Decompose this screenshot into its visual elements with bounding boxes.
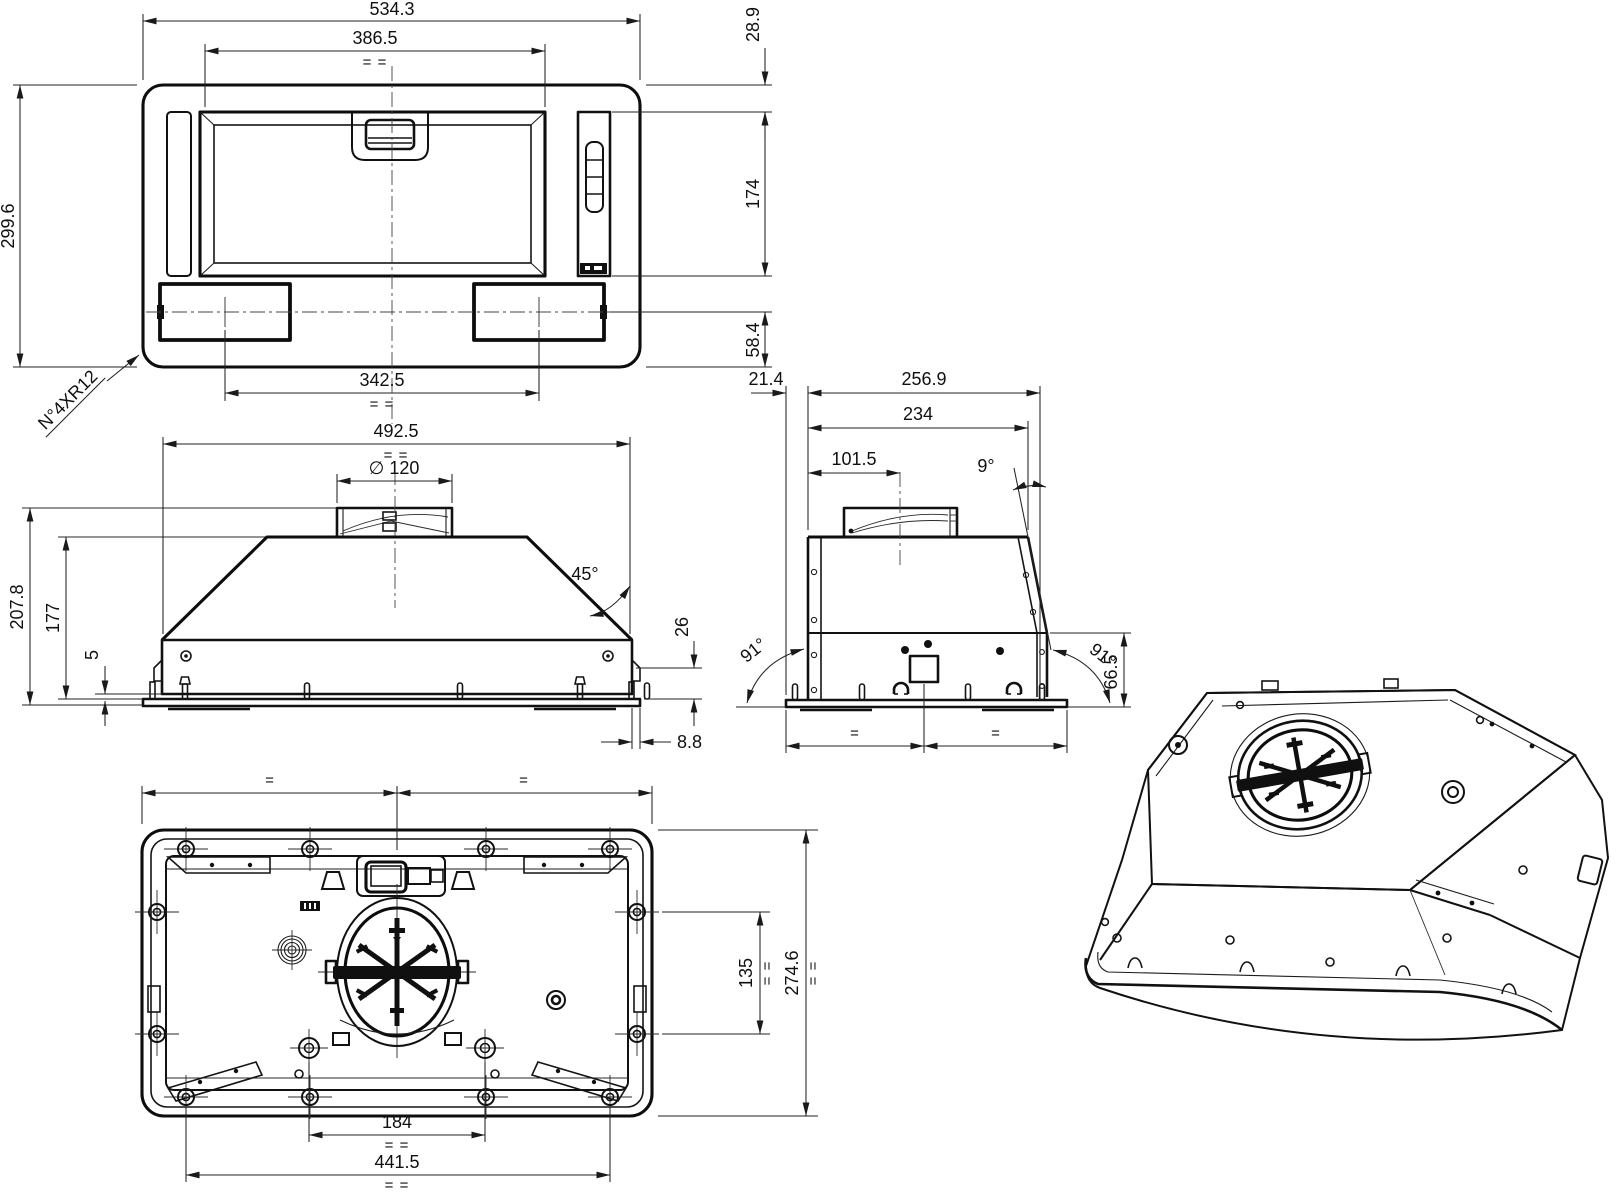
dim-angle-left: 91° [736, 634, 770, 667]
flange-plate [143, 699, 640, 706]
dim-edge-height: 26 [672, 617, 692, 637]
side-dimensions: 21.4 256.9 234 101.5 9° 91° 91° 66.5 [736, 369, 1131, 753]
underside-panel [1148, 690, 1575, 890]
fan-assembly [318, 884, 476, 1058]
dim-flange-overhang: 8.8 [677, 732, 702, 752]
plan-view: 534.3 386.5 = = 299.6 28.9 174 58.4 [0, 0, 772, 437]
iso-rim-inner [1098, 952, 1552, 1012]
bottom-view: = = 135 = = 274.6 = = 184 = = 441.5 = = [135, 772, 822, 1194]
dim-side-total-depth: 256.9 [901, 369, 946, 389]
control-panel [578, 112, 610, 276]
dim-tilt-angle: 9° [977, 456, 994, 476]
front-elevation: 492.5 = = ∅ 120 45° 207.8 177 5 26 [7, 421, 702, 752]
eq-mark: = [991, 725, 1001, 742]
eq-mark: = = [759, 961, 776, 986]
dim-duct-diameter: ∅ 120 [369, 458, 420, 478]
eq-mark: = = [805, 961, 822, 986]
dim-plan-lamp-spacing: 342.5 [359, 370, 404, 390]
eq-mark: = [850, 725, 860, 742]
dim-bottom-screw-depth: 135 [736, 958, 756, 988]
eq-mark: = [265, 772, 275, 789]
isometric-view [1086, 679, 1609, 1040]
latch-underside [357, 856, 445, 896]
corner-radius-note: N°4XR12 [34, 366, 101, 433]
latch-handle [352, 113, 428, 160]
cable-cutout [910, 656, 938, 682]
dim-plan-panel-height: 174 [743, 179, 763, 209]
iso-rim-outer [1086, 958, 1563, 1030]
dim-flange-gap: 5 [82, 650, 102, 660]
dim-plan-total-height: 299.6 [0, 203, 18, 248]
dim-bottom-total-depth: 274.6 [782, 950, 802, 995]
lower-band [162, 640, 632, 694]
dim-duct-center: 101.5 [831, 449, 876, 469]
bottom-body [135, 827, 659, 1119]
bottom-dimensions: = = 135 = = 274.6 = = 184 = = 441.5 = = [142, 772, 822, 1194]
eq-mark: = [519, 772, 529, 789]
side-body [786, 472, 1067, 710]
dim-plan-lamp-offset: 58.4 [743, 322, 763, 357]
dim-plan-inner-width: 386.5 [352, 28, 397, 48]
dim-band-height: 66.5 [1101, 654, 1121, 689]
technical-drawing-page: 534.3 386.5 = = 299.6 28.9 174 58.4 [0, 0, 1619, 1200]
front-body [22, 470, 650, 709]
technical-drawing: 534.3 386.5 = = 299.6 28.9 174 58.4 [0, 0, 1619, 1200]
iso-port [1577, 855, 1603, 885]
dim-front-total-height: 207.8 [7, 584, 27, 629]
dim-slope-angle: 45° [571, 564, 598, 584]
plan-dimensions: 534.3 386.5 = = 299.6 28.9 174 58.4 [0, 0, 772, 437]
brand-label [580, 263, 607, 274]
iso-knob [1442, 781, 1464, 803]
dim-plan-top-offset: 28.9 [743, 7, 763, 42]
side-flange [786, 700, 1067, 707]
dim-front-width: 492.5 [373, 421, 418, 441]
front-dimensions: 492.5 = = ∅ 120 45° 207.8 177 5 26 [7, 421, 702, 752]
hood-canopy [162, 537, 632, 640]
dim-plan-total-width: 534.3 [369, 0, 414, 19]
adjuster-knob [272, 930, 312, 970]
eq-mark: = = [363, 54, 388, 71]
dim-side-body-depth: 234 [903, 404, 933, 424]
iso-fan [1220, 703, 1379, 847]
side-elevation: 21.4 256.9 234 101.5 9° 91° 91° 66.5 [736, 369, 1131, 753]
dim-bottom-screw-width: 441.5 [374, 1152, 419, 1172]
eq-mark: = = [370, 396, 395, 413]
grease-drain [547, 991, 565, 1009]
eq-mark: = = [385, 1177, 410, 1194]
dim-front-body-height: 177 [43, 603, 63, 633]
dim-bottom-hole-spacing: 184 [382, 1112, 412, 1132]
dim-side-overhang: 21.4 [748, 369, 783, 389]
